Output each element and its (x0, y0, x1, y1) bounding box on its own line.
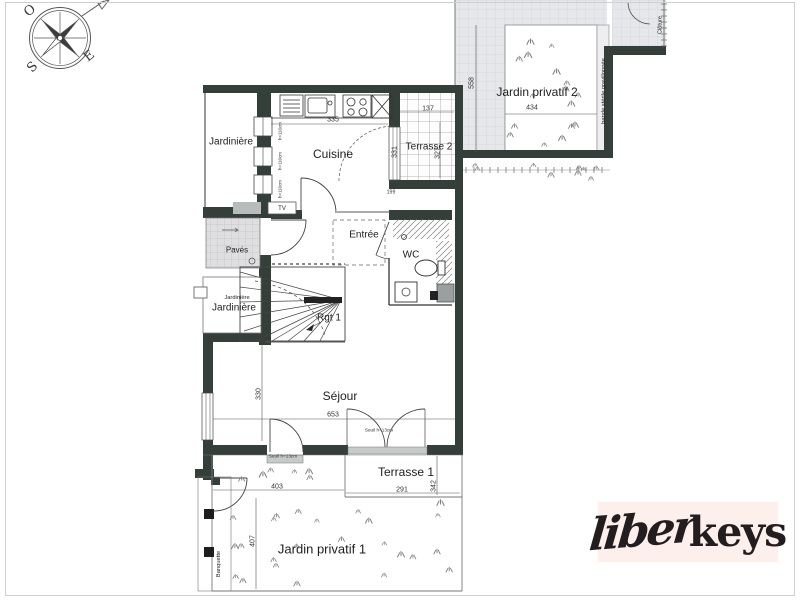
label-rgt: Rgt 1 (317, 313, 341, 324)
dim-sejour-w: 653 (327, 412, 339, 419)
label-terrasse2: Terrasse 2 (406, 142, 453, 153)
label-entree: Entrée (349, 230, 378, 241)
dim-jardin2-h: 558 (469, 77, 476, 89)
dim-terrasse1-h: 342 (431, 480, 438, 492)
label-jardin2: Jardin privatif 2 (496, 85, 577, 99)
paves-area (206, 218, 260, 268)
dim-cuisine-h: 331 (392, 146, 399, 158)
note-seuil-terrasse: Seuil h=13cm (365, 427, 393, 432)
note-window3: h=110cm (278, 180, 283, 198)
logo-bold-text: keys (689, 503, 786, 561)
label-terrasse1: Terrasse 1 (378, 465, 434, 479)
label-wc: WC (403, 250, 420, 261)
compass-west-letter: O (21, 2, 39, 20)
stairs-arrow-icon (306, 324, 314, 331)
liberkeys-logo: liberkeys (598, 502, 778, 562)
dim-cuisine-w: 335 (327, 117, 339, 124)
label-cloture: Clôture (657, 16, 663, 34)
floor-plan-page: O E S Jardinière Cuisine Terrasse 2 Jard… (0, 0, 800, 600)
utility-box (194, 287, 207, 298)
dim-terrasse2-w: 137 (422, 106, 434, 113)
label-tv: TV (278, 205, 286, 212)
kitchen-counter (271, 95, 392, 118)
dim-jardin1-h: 407 (250, 535, 257, 547)
compass-east-letter: E (81, 47, 98, 65)
label-jardin1: Jardin privatif 1 (278, 542, 366, 557)
label-banquette: Banquette (215, 551, 221, 577)
note-window2: h=110cm (278, 152, 283, 170)
window-icon (254, 117, 272, 194)
banquette-post (204, 509, 214, 519)
note-seuil-jardin: Seuil h=13cm (269, 453, 297, 458)
label-jardiniere-top: Jardinière (209, 137, 253, 148)
dim-door-w: 199 (387, 189, 396, 195)
logo-script-text: liber (587, 498, 696, 565)
label-sejour: Séjour (323, 389, 358, 403)
wc-fixtures (389, 219, 454, 305)
label-bande-sterile: bande stérile gravillonnée (600, 58, 606, 124)
label-cuisine: Cuisine (313, 147, 353, 161)
label-jardiniere-mid: Jardinière (212, 303, 256, 314)
dim-jardin2-w: 434 (526, 105, 538, 112)
niche-box (233, 202, 261, 214)
compass-south-letter: S (24, 59, 41, 76)
label-paves: Pavés (226, 246, 248, 255)
dim-jardin1-w: 403 (271, 484, 283, 491)
overhead-dashed (333, 220, 385, 265)
dim-terrasse1-w: 291 (396, 487, 408, 494)
dim-terrasse2-h: 327 (435, 147, 442, 159)
dim-sejour-h: 330 (256, 388, 263, 400)
banquette-post (204, 547, 214, 557)
compass-rose: O E S (21, 0, 109, 76)
note-window1: h=110cm (278, 122, 283, 140)
label-jardiniere-mid-small: Jardinière (224, 294, 249, 300)
stair-rail (304, 297, 342, 303)
